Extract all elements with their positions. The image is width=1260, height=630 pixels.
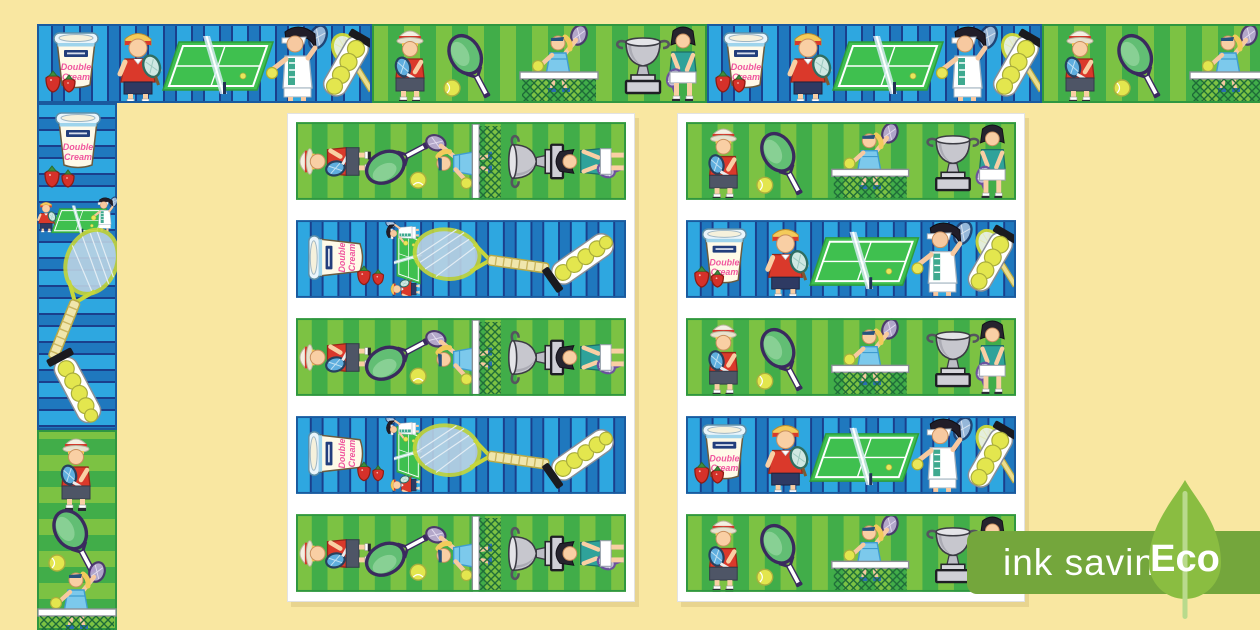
border-strip-green-rotated xyxy=(296,514,626,592)
top-display-border xyxy=(37,24,1260,103)
printable-page-2 xyxy=(677,113,1025,602)
border-segment-blue xyxy=(707,24,1042,103)
border-strip-blue xyxy=(686,220,1016,298)
border-strip-green-rotated xyxy=(296,122,626,200)
resource-preview: Double Cream xyxy=(0,0,1260,630)
eco-label: Eco xyxy=(1135,538,1235,581)
printable-page-1 xyxy=(287,113,635,602)
border-strip-green-rotated xyxy=(296,318,626,396)
border-strip-blue-rotated xyxy=(296,220,626,298)
border-segment-green xyxy=(372,24,707,103)
border-segment-green xyxy=(1042,24,1260,103)
border-strip-green xyxy=(686,318,1016,396)
border-segment-blue xyxy=(37,24,372,103)
left-display-border xyxy=(37,103,117,630)
border-strip-blue-rotated xyxy=(296,416,626,494)
border-strip-green xyxy=(686,122,1016,200)
border-strip-blue xyxy=(686,416,1016,494)
